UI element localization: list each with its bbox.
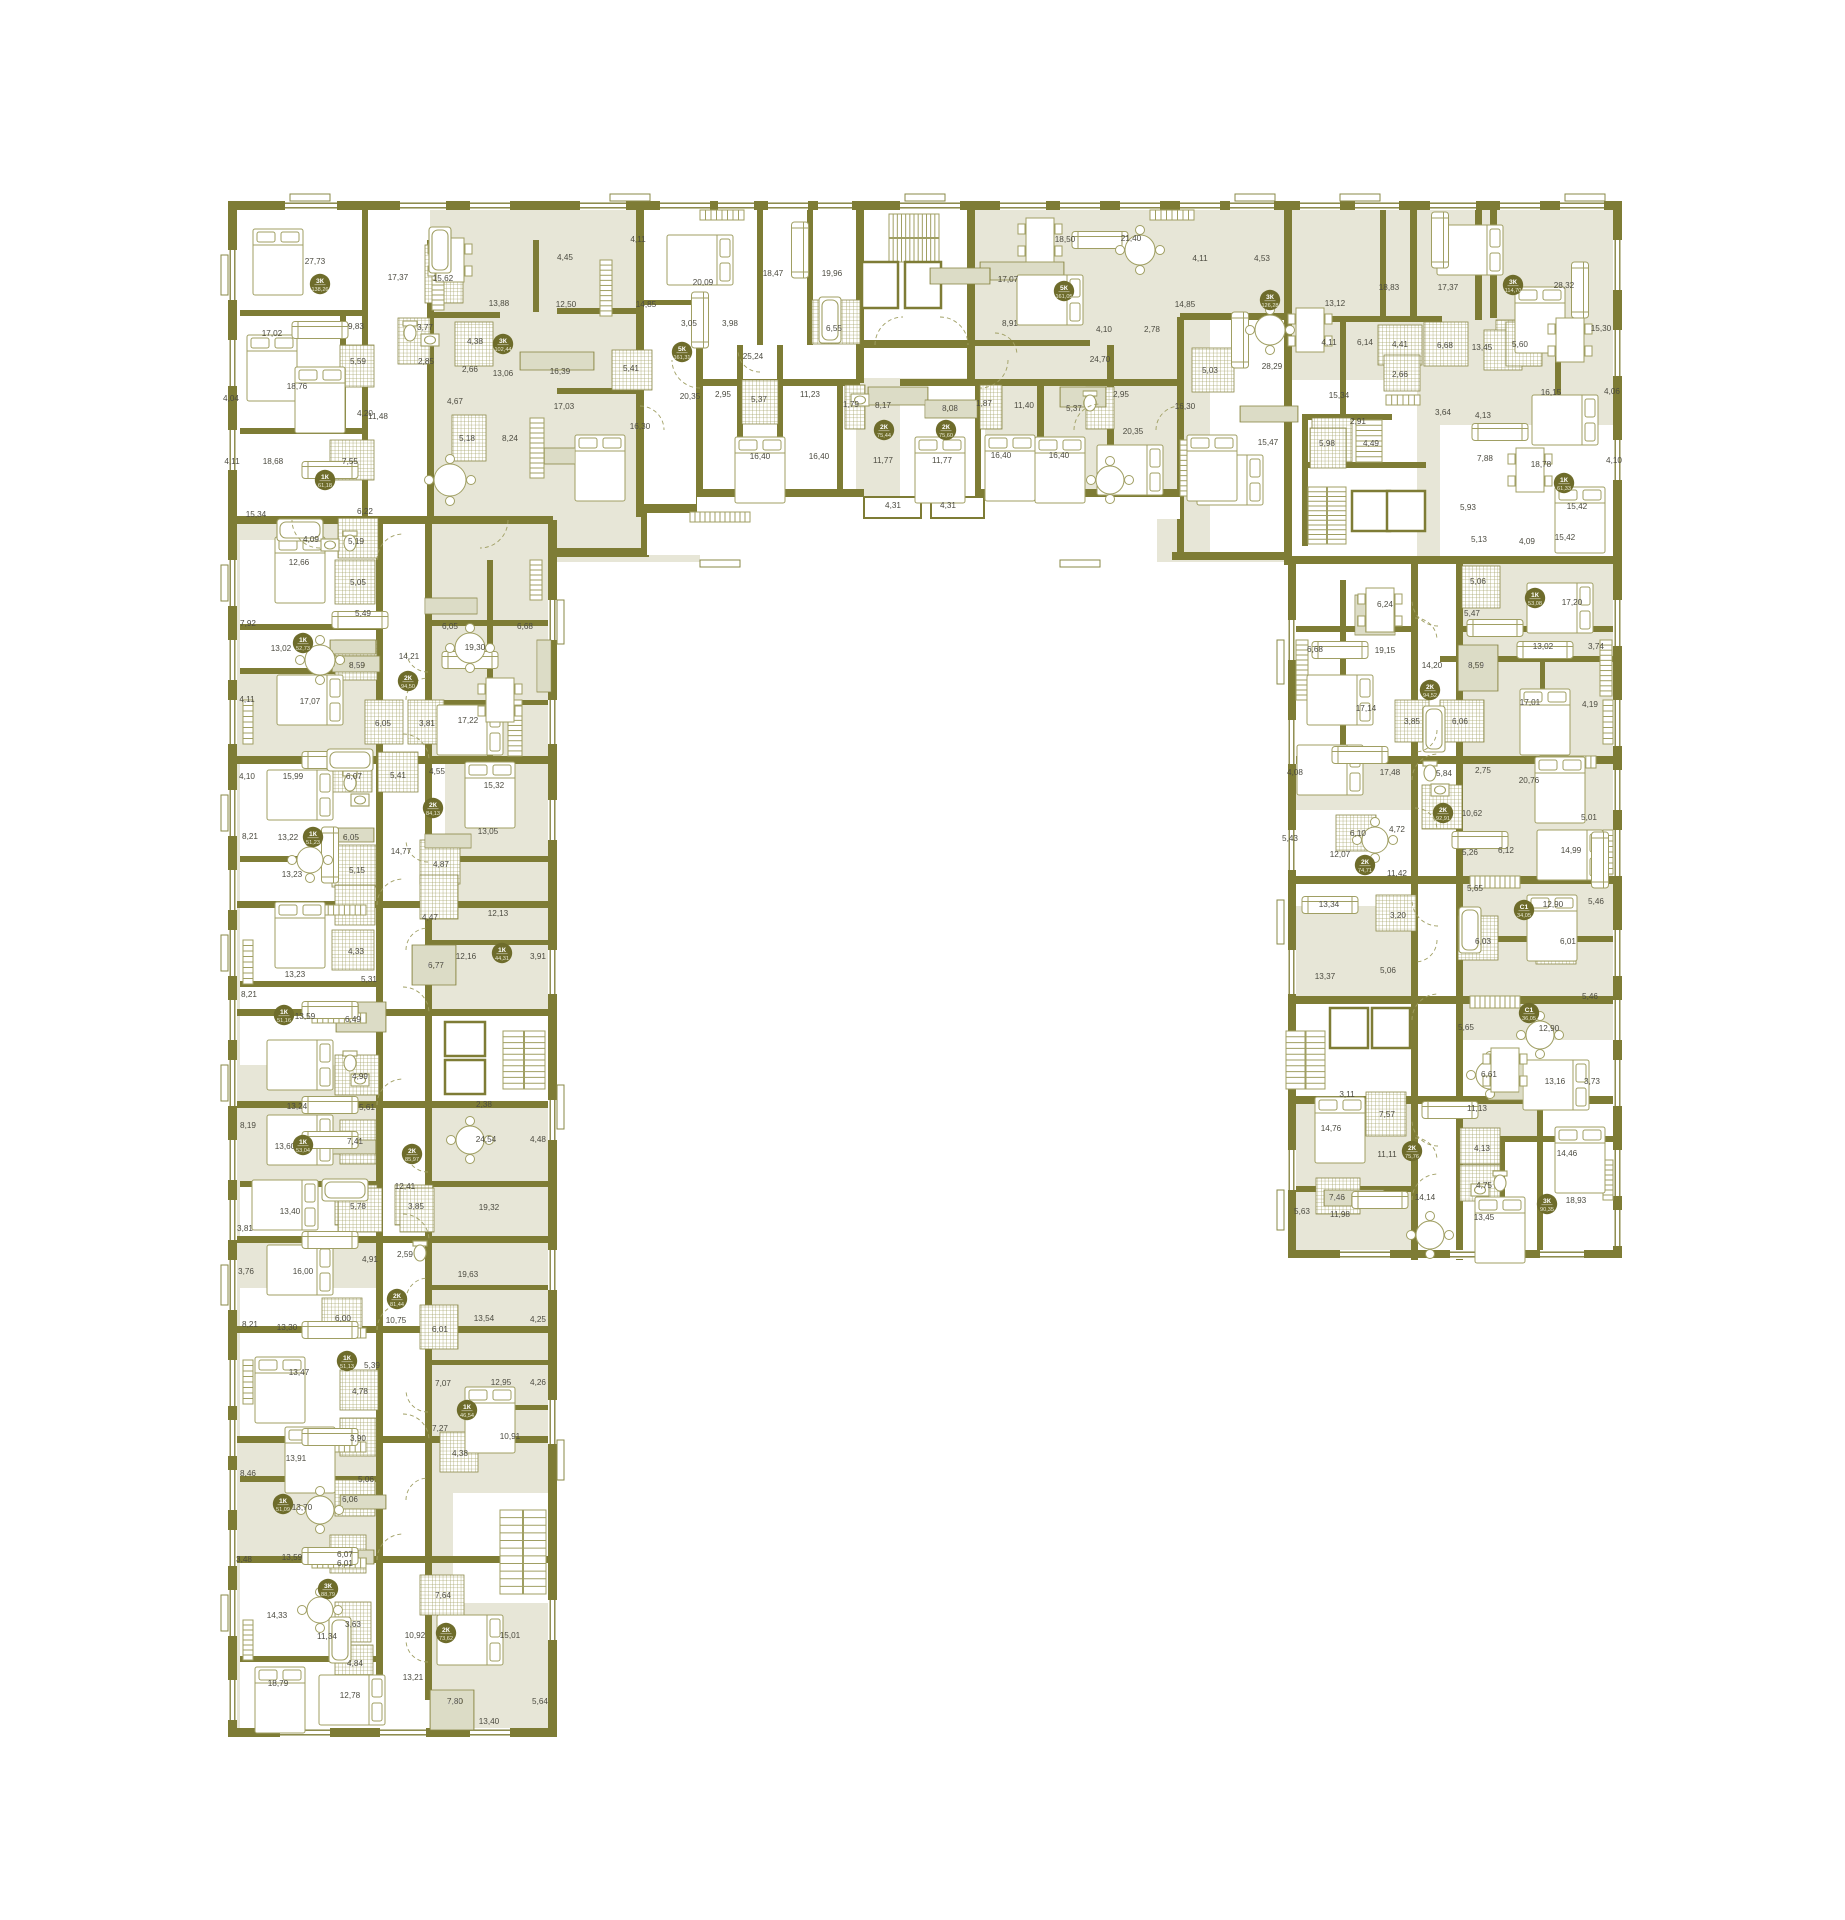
svg-text:6,01: 6,01 xyxy=(337,1559,353,1568)
svg-text:7,92: 7,92 xyxy=(240,619,256,628)
svg-text:6,68: 6,68 xyxy=(1307,645,1323,654)
svg-text:3,77: 3,77 xyxy=(417,323,433,332)
svg-text:51,09: 51,09 xyxy=(276,1507,290,1513)
svg-text:6,77: 6,77 xyxy=(428,961,444,970)
svg-text:2,66: 2,66 xyxy=(1392,370,1408,379)
svg-text:16,30: 16,30 xyxy=(630,422,651,431)
svg-text:7,64: 7,64 xyxy=(435,1591,451,1600)
svg-text:75,60: 75,60 xyxy=(939,433,953,439)
svg-text:13,37: 13,37 xyxy=(1315,972,1336,981)
svg-text:94,50: 94,50 xyxy=(401,684,415,690)
svg-text:13,22: 13,22 xyxy=(278,833,299,842)
svg-text:5,65: 5,65 xyxy=(1467,884,1483,893)
svg-text:6,24: 6,24 xyxy=(1377,600,1393,609)
svg-text:5,13: 5,13 xyxy=(1471,535,1487,544)
svg-text:16,15: 16,15 xyxy=(1541,388,1562,397)
svg-text:13,12: 13,12 xyxy=(1325,299,1346,308)
svg-text:8,91: 8,91 xyxy=(1002,319,1018,328)
svg-text:6,01: 6,01 xyxy=(1560,937,1576,946)
svg-text:14,85: 14,85 xyxy=(636,300,657,309)
svg-text:6,05: 6,05 xyxy=(343,833,359,842)
svg-text:5,93: 5,93 xyxy=(1460,503,1476,512)
svg-text:4,84: 4,84 xyxy=(347,1659,363,1668)
svg-text:18,50: 18,50 xyxy=(1055,235,1076,244)
svg-text:1К: 1К xyxy=(280,1009,289,1016)
svg-text:19,96: 19,96 xyxy=(822,269,843,278)
svg-text:73,62: 73,62 xyxy=(439,1636,453,1642)
svg-text:17,02: 17,02 xyxy=(262,329,283,338)
svg-text:19,32: 19,32 xyxy=(479,1203,500,1212)
svg-text:13,02: 13,02 xyxy=(1533,642,1554,651)
svg-text:13,70: 13,70 xyxy=(292,1503,313,1512)
svg-text:3,74: 3,74 xyxy=(1588,642,1604,651)
svg-text:5,60: 5,60 xyxy=(1512,340,1528,349)
svg-text:18,83: 18,83 xyxy=(1379,283,1400,292)
svg-text:6,14: 6,14 xyxy=(1357,338,1373,347)
svg-text:12,90: 12,90 xyxy=(1543,900,1564,909)
svg-text:4,72: 4,72 xyxy=(1389,825,1405,834)
svg-text:6,03: 6,03 xyxy=(1475,937,1491,946)
svg-text:18,93: 18,93 xyxy=(1566,1196,1587,1205)
svg-text:12,95: 12,95 xyxy=(491,1378,512,1387)
svg-text:20,35: 20,35 xyxy=(1123,427,1144,436)
svg-text:12,78: 12,78 xyxy=(340,1691,361,1700)
svg-text:13,06: 13,06 xyxy=(493,369,514,378)
svg-text:88,79: 88,79 xyxy=(321,1592,335,1598)
svg-text:28,29: 28,29 xyxy=(1262,362,1283,371)
svg-text:8,21: 8,21 xyxy=(242,1320,258,1329)
svg-text:5,39: 5,39 xyxy=(364,1361,380,1370)
svg-text:1К: 1К xyxy=(299,637,308,644)
svg-text:4,38: 4,38 xyxy=(467,337,483,346)
svg-text:5,78: 5,78 xyxy=(350,1202,366,1211)
svg-text:6,06: 6,06 xyxy=(1452,717,1468,726)
svg-text:51,16: 51,16 xyxy=(277,1018,291,1024)
svg-text:8,08: 8,08 xyxy=(942,404,958,413)
svg-text:53,04: 53,04 xyxy=(296,1148,310,1154)
svg-text:52,73: 52,73 xyxy=(296,646,310,652)
svg-text:11,11: 11,11 xyxy=(1377,1150,1397,1159)
svg-text:2,91: 2,91 xyxy=(1350,417,1366,426)
svg-text:4,13: 4,13 xyxy=(1474,1144,1490,1153)
svg-text:3,90: 3,90 xyxy=(350,1434,366,1443)
svg-text:С1: С1 xyxy=(1525,1007,1534,1014)
svg-text:2,78: 2,78 xyxy=(1144,325,1160,334)
svg-text:13,16: 13,16 xyxy=(1545,1077,1566,1086)
svg-text:5,47: 5,47 xyxy=(1464,609,1480,618)
svg-text:5,37: 5,37 xyxy=(751,395,767,404)
svg-text:15,32: 15,32 xyxy=(484,781,505,790)
svg-text:12,13: 12,13 xyxy=(488,909,509,918)
svg-text:2,38: 2,38 xyxy=(476,1100,492,1109)
svg-text:85,97: 85,97 xyxy=(405,1157,419,1163)
svg-text:24,54: 24,54 xyxy=(476,1135,497,1144)
svg-text:3К: 3К xyxy=(499,338,508,345)
svg-text:7,80: 7,80 xyxy=(447,1697,463,1706)
svg-text:2,59: 2,59 xyxy=(397,1250,413,1259)
svg-text:7,46: 7,46 xyxy=(1329,1193,1345,1202)
svg-text:14,76: 14,76 xyxy=(1321,1124,1342,1133)
svg-text:13,23: 13,23 xyxy=(282,870,303,879)
svg-text:2К: 2К xyxy=(1426,684,1435,691)
svg-text:17,37: 17,37 xyxy=(388,273,409,282)
svg-text:36,05: 36,05 xyxy=(1522,1016,1536,1022)
svg-text:2К: 2К xyxy=(404,675,413,682)
svg-text:5,59: 5,59 xyxy=(350,357,366,366)
svg-text:102,44: 102,44 xyxy=(494,347,511,353)
svg-text:1К: 1К xyxy=(498,947,507,954)
svg-text:3К: 3К xyxy=(1543,1198,1552,1205)
svg-text:13,47: 13,47 xyxy=(289,1368,310,1377)
svg-text:3К: 3К xyxy=(316,278,325,285)
svg-text:84,13: 84,13 xyxy=(426,811,440,817)
svg-text:4,87: 4,87 xyxy=(433,860,449,869)
svg-text:17,07: 17,07 xyxy=(300,697,321,706)
svg-text:6,22: 6,22 xyxy=(357,507,373,516)
svg-text:5,41: 5,41 xyxy=(623,364,639,373)
svg-text:16,00: 16,00 xyxy=(293,1267,314,1276)
svg-text:18,47: 18,47 xyxy=(763,269,784,278)
svg-text:8,46: 8,46 xyxy=(240,1469,256,1478)
svg-text:3К: 3К xyxy=(1509,279,1518,286)
svg-text:3,81: 3,81 xyxy=(419,719,435,728)
svg-text:4,19: 4,19 xyxy=(1582,700,1598,709)
svg-text:2К: 2К xyxy=(942,424,951,431)
svg-text:4,08: 4,08 xyxy=(1287,768,1303,777)
svg-text:4,09: 4,09 xyxy=(303,535,319,544)
svg-text:20,76: 20,76 xyxy=(1519,776,1540,785)
svg-text:13,60: 13,60 xyxy=(275,1142,296,1151)
svg-text:7,88: 7,88 xyxy=(1477,454,1493,463)
svg-text:17,20: 17,20 xyxy=(1562,598,1583,607)
svg-text:19,30: 19,30 xyxy=(465,643,486,652)
svg-text:13,88: 13,88 xyxy=(489,299,510,308)
svg-text:8,19: 8,19 xyxy=(240,1121,256,1130)
svg-text:17,01: 17,01 xyxy=(1520,698,1541,707)
svg-text:94,52: 94,52 xyxy=(1423,693,1437,699)
svg-text:5,05: 5,05 xyxy=(350,578,366,587)
svg-text:14,21: 14,21 xyxy=(399,652,420,661)
svg-text:5,98: 5,98 xyxy=(1319,439,1335,448)
svg-text:114,70: 114,70 xyxy=(1505,288,1522,294)
svg-text:5,03: 5,03 xyxy=(1202,366,1218,375)
svg-text:13,54: 13,54 xyxy=(474,1314,495,1323)
svg-text:13,23: 13,23 xyxy=(285,970,306,979)
svg-text:15,34: 15,34 xyxy=(246,510,267,519)
svg-text:11,77: 11,77 xyxy=(932,456,952,465)
svg-text:3,11: 3,11 xyxy=(1339,1090,1355,1099)
svg-text:46,54: 46,54 xyxy=(460,1413,474,1419)
svg-text:4,06: 4,06 xyxy=(1604,387,1620,396)
svg-text:4,11: 4,11 xyxy=(239,695,255,704)
svg-text:7,55: 7,55 xyxy=(342,457,358,466)
svg-text:75,44: 75,44 xyxy=(877,433,891,439)
svg-text:3,98: 3,98 xyxy=(722,319,738,328)
svg-text:3К: 3К xyxy=(324,1583,333,1590)
svg-text:74,71: 74,71 xyxy=(1358,868,1372,874)
svg-text:5,01: 5,01 xyxy=(1581,813,1597,822)
svg-text:4,10: 4,10 xyxy=(1096,325,1112,334)
svg-text:4,45: 4,45 xyxy=(557,253,573,262)
svg-text:13,21: 13,21 xyxy=(403,1673,424,1682)
svg-text:5,65: 5,65 xyxy=(1458,1023,1474,1032)
svg-text:17,14: 17,14 xyxy=(1356,704,1377,713)
svg-text:2К: 2К xyxy=(1361,859,1370,866)
svg-text:6,61: 6,61 xyxy=(1481,1070,1497,1079)
svg-text:51,13: 51,13 xyxy=(340,1364,354,1370)
svg-text:81,44: 81,44 xyxy=(390,1302,404,1308)
svg-text:7,57: 7,57 xyxy=(1379,1110,1395,1119)
svg-text:6,01: 6,01 xyxy=(432,1325,448,1334)
svg-text:4,13: 4,13 xyxy=(1475,411,1491,420)
svg-text:13,40: 13,40 xyxy=(280,1207,301,1216)
svg-text:4,33: 4,33 xyxy=(348,947,364,956)
svg-text:7,07: 7,07 xyxy=(435,1379,451,1388)
svg-text:17,37: 17,37 xyxy=(1438,283,1459,292)
svg-text:1,87: 1,87 xyxy=(976,399,992,408)
svg-text:11,40: 11,40 xyxy=(1014,401,1034,410)
svg-text:20,35: 20,35 xyxy=(680,392,701,401)
svg-text:4,67: 4,67 xyxy=(447,397,463,406)
svg-text:16,40: 16,40 xyxy=(750,452,771,461)
svg-text:5К: 5К xyxy=(1060,285,1069,292)
svg-text:5,37: 5,37 xyxy=(1066,404,1082,413)
svg-text:16,39: 16,39 xyxy=(550,367,571,376)
svg-text:6,49: 6,49 xyxy=(345,1015,361,1024)
svg-text:6,07: 6,07 xyxy=(337,1550,353,1559)
svg-text:13,05: 13,05 xyxy=(478,827,499,836)
svg-text:18,78: 18,78 xyxy=(1531,460,1552,469)
svg-text:4,10: 4,10 xyxy=(1606,456,1622,465)
svg-text:5,64: 5,64 xyxy=(532,1697,548,1706)
svg-text:5,26: 5,26 xyxy=(1462,848,1478,857)
svg-text:13,91: 13,91 xyxy=(286,1454,307,1463)
svg-text:2К: 2К xyxy=(880,424,889,431)
svg-text:4,48: 4,48 xyxy=(530,1135,546,1144)
svg-text:18,79: 18,79 xyxy=(268,1679,289,1688)
svg-text:126,28: 126,28 xyxy=(1261,303,1278,309)
svg-text:14,46: 14,46 xyxy=(1557,1149,1578,1158)
svg-text:4,47: 4,47 xyxy=(422,913,438,922)
svg-text:1К: 1К xyxy=(299,1139,308,1146)
svg-text:11,13: 11,13 xyxy=(1467,1104,1487,1113)
svg-text:161,31: 161,31 xyxy=(673,355,690,361)
svg-text:2,85: 2,85 xyxy=(418,357,434,366)
svg-text:6,68: 6,68 xyxy=(1437,341,1453,350)
svg-text:15,99: 15,99 xyxy=(283,772,304,781)
svg-text:18,68: 18,68 xyxy=(263,457,284,466)
svg-text:8,21: 8,21 xyxy=(241,990,257,999)
svg-text:С1: С1 xyxy=(1520,904,1529,911)
svg-text:8,17: 8,17 xyxy=(875,401,891,410)
svg-text:5,18: 5,18 xyxy=(459,434,475,443)
svg-text:6,05: 6,05 xyxy=(375,719,391,728)
svg-text:8,59: 8,59 xyxy=(1468,661,1484,670)
svg-text:2К: 2К xyxy=(1439,807,1448,814)
svg-text:5,06: 5,06 xyxy=(1380,966,1396,975)
svg-text:16,40: 16,40 xyxy=(809,452,830,461)
svg-text:5,06: 5,06 xyxy=(1470,577,1486,586)
svg-text:5,19: 5,19 xyxy=(348,537,364,546)
svg-text:3,63: 3,63 xyxy=(345,1620,361,1629)
svg-text:44,31: 44,31 xyxy=(495,956,509,962)
svg-text:11,23: 11,23 xyxy=(800,390,820,399)
svg-text:14,85: 14,85 xyxy=(1175,300,1196,309)
svg-text:13,24: 13,24 xyxy=(287,1102,308,1111)
svg-text:14,33: 14,33 xyxy=(267,1611,288,1620)
svg-text:3,85: 3,85 xyxy=(408,1202,424,1211)
svg-text:10,75: 10,75 xyxy=(386,1316,407,1325)
svg-text:4,31: 4,31 xyxy=(885,501,901,510)
svg-text:4,11: 4,11 xyxy=(224,457,240,466)
svg-text:5,49: 5,49 xyxy=(355,609,371,618)
svg-text:4,91: 4,91 xyxy=(362,1255,378,1264)
svg-text:90,35: 90,35 xyxy=(1540,1207,1554,1213)
svg-text:24,70: 24,70 xyxy=(1090,355,1111,364)
svg-text:6,05: 6,05 xyxy=(442,622,458,631)
svg-text:5К: 5К xyxy=(678,346,687,353)
svg-text:11,98: 11,98 xyxy=(1330,1210,1350,1219)
svg-text:5,15: 5,15 xyxy=(349,866,365,875)
svg-text:4,31: 4,31 xyxy=(940,501,956,510)
svg-text:4,11: 4,11 xyxy=(630,235,646,244)
svg-text:14,14: 14,14 xyxy=(1415,1193,1436,1202)
svg-text:8,21: 8,21 xyxy=(242,832,258,841)
svg-text:12,66: 12,66 xyxy=(289,558,310,567)
svg-text:12,41: 12,41 xyxy=(395,1182,416,1191)
svg-text:17,03: 17,03 xyxy=(554,402,575,411)
svg-text:4,10: 4,10 xyxy=(239,772,255,781)
svg-text:19,63: 19,63 xyxy=(458,1270,479,1279)
svg-text:1К: 1К xyxy=(1560,477,1569,484)
svg-text:3,20: 3,20 xyxy=(1390,911,1406,920)
svg-text:13,02: 13,02 xyxy=(271,644,292,653)
svg-text:10,92: 10,92 xyxy=(405,1631,426,1640)
svg-text:19,15: 19,15 xyxy=(1375,646,1396,655)
svg-text:12,07: 12,07 xyxy=(1330,850,1351,859)
svg-text:138,26: 138,26 xyxy=(311,287,328,293)
svg-text:13,45: 13,45 xyxy=(1472,343,1493,352)
svg-text:17,07: 17,07 xyxy=(998,275,1019,284)
svg-text:12,16: 12,16 xyxy=(456,952,477,961)
svg-text:4,11: 4,11 xyxy=(1321,338,1337,347)
svg-text:3,91: 3,91 xyxy=(530,952,546,961)
svg-text:2,75: 2,75 xyxy=(1475,766,1491,775)
svg-text:2,95: 2,95 xyxy=(1113,390,1129,399)
svg-text:4,99: 4,99 xyxy=(352,1072,368,1081)
svg-text:7,41: 7,41 xyxy=(347,1137,363,1146)
svg-text:6,55: 6,55 xyxy=(826,324,842,333)
svg-text:15,42: 15,42 xyxy=(1555,533,1576,542)
svg-text:14,77: 14,77 xyxy=(391,847,412,856)
svg-text:75,76: 75,76 xyxy=(1405,1154,1419,1160)
svg-text:17,22: 17,22 xyxy=(458,716,479,725)
svg-text:2К: 2К xyxy=(1408,1145,1417,1152)
svg-text:5,06: 5,06 xyxy=(358,1475,374,1484)
svg-text:5,46: 5,46 xyxy=(1588,897,1604,906)
svg-text:8,24: 8,24 xyxy=(502,434,518,443)
svg-text:5,31: 5,31 xyxy=(361,975,377,984)
svg-text:12,50: 12,50 xyxy=(556,300,577,309)
svg-text:61,33: 61,33 xyxy=(1557,486,1571,492)
svg-text:6,68: 6,68 xyxy=(517,622,533,631)
svg-text:12,90: 12,90 xyxy=(1539,1024,1560,1033)
svg-text:5,61: 5,61 xyxy=(359,1103,375,1112)
svg-text:4,25: 4,25 xyxy=(530,1315,546,1324)
svg-text:92,91: 92,91 xyxy=(1436,816,1450,822)
svg-text:4,49: 4,49 xyxy=(1363,439,1379,448)
svg-text:1К: 1К xyxy=(343,1355,352,1362)
svg-text:3,76: 3,76 xyxy=(238,1267,254,1276)
svg-text:11,34: 11,34 xyxy=(317,1632,337,1641)
svg-text:4,26: 4,26 xyxy=(530,1378,546,1387)
svg-text:6,10: 6,10 xyxy=(1350,829,1366,838)
svg-text:15,47: 15,47 xyxy=(1258,438,1279,447)
svg-text:6,07: 6,07 xyxy=(346,772,362,781)
svg-text:15,01: 15,01 xyxy=(500,1631,521,1640)
svg-text:27,73: 27,73 xyxy=(305,257,326,266)
svg-text:4,55: 4,55 xyxy=(429,767,445,776)
svg-text:3,48: 3,48 xyxy=(236,1555,252,1564)
svg-text:28,32: 28,32 xyxy=(1554,281,1575,290)
svg-text:161,05: 161,05 xyxy=(1055,294,1072,300)
svg-text:4,04: 4,04 xyxy=(223,394,239,403)
svg-text:25,24: 25,24 xyxy=(743,352,764,361)
svg-text:1К: 1К xyxy=(321,474,330,481)
svg-text:1К: 1К xyxy=(279,1498,288,1505)
svg-text:53,08: 53,08 xyxy=(1528,601,1542,607)
svg-text:9,83: 9,83 xyxy=(348,322,364,331)
svg-text:3,81: 3,81 xyxy=(237,1224,253,1233)
svg-text:13,45: 13,45 xyxy=(1474,1213,1495,1222)
svg-text:34,05: 34,05 xyxy=(1517,913,1531,919)
svg-text:4,78: 4,78 xyxy=(352,1387,368,1396)
svg-text:16,30: 16,30 xyxy=(1175,402,1196,411)
svg-text:3,73: 3,73 xyxy=(1584,1077,1600,1086)
svg-text:17,48: 17,48 xyxy=(1380,768,1401,777)
svg-text:14,99: 14,99 xyxy=(1561,846,1582,855)
svg-text:13,59: 13,59 xyxy=(295,1012,316,1021)
svg-text:15,42: 15,42 xyxy=(1567,502,1588,511)
svg-text:15,62: 15,62 xyxy=(433,274,454,283)
svg-text:11,48: 11,48 xyxy=(368,412,388,421)
svg-text:3,85: 3,85 xyxy=(1404,717,1420,726)
svg-text:2,95: 2,95 xyxy=(715,390,731,399)
svg-text:1,79: 1,79 xyxy=(843,400,859,409)
svg-text:5,46: 5,46 xyxy=(1582,992,1598,1001)
svg-text:10,62: 10,62 xyxy=(1462,809,1483,818)
svg-text:20,09: 20,09 xyxy=(693,278,714,287)
svg-text:18,76: 18,76 xyxy=(287,382,308,391)
svg-text:13,59: 13,59 xyxy=(282,1553,303,1562)
svg-text:1К: 1К xyxy=(1531,592,1540,599)
svg-text:4,75: 4,75 xyxy=(1476,1181,1492,1190)
svg-text:4,38: 4,38 xyxy=(452,1449,468,1458)
svg-text:7,27: 7,27 xyxy=(432,1424,448,1433)
svg-text:2К: 2К xyxy=(408,1148,417,1155)
svg-text:2К: 2К xyxy=(442,1627,451,1634)
svg-text:13,34: 13,34 xyxy=(1319,900,1340,909)
svg-text:13,30: 13,30 xyxy=(277,1323,298,1332)
svg-text:2К: 2К xyxy=(393,1293,402,1300)
svg-text:6,12: 6,12 xyxy=(1498,846,1514,855)
svg-text:1К: 1К xyxy=(309,831,318,838)
svg-text:3,05: 3,05 xyxy=(681,319,697,328)
svg-text:6,00: 6,00 xyxy=(335,1314,351,1323)
svg-text:10,91: 10,91 xyxy=(500,1432,521,1441)
svg-text:16,40: 16,40 xyxy=(1049,451,1070,460)
svg-text:21,40: 21,40 xyxy=(1121,234,1142,243)
